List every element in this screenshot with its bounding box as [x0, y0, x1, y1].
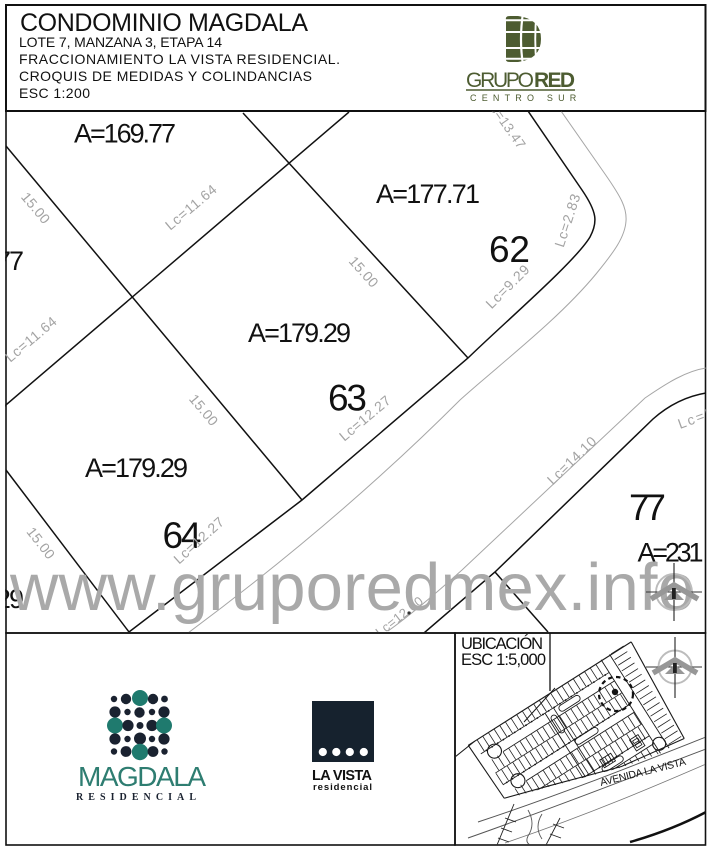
svg-text:A=177.71: A=177.71 [376, 179, 480, 209]
svg-text:A=179.29: A=179.29 [248, 318, 351, 348]
svg-text:ESC 1:200: ESC 1:200 [19, 85, 90, 101]
svg-text:FRACCIONAMIENTO LA VISTA RESID: FRACCIONAMIENTO LA VISTA RESIDENCIAL. [19, 51, 340, 67]
svg-text:GRUPO: GRUPO [466, 69, 534, 92]
svg-text:CENTRO SUR: CENTRO SUR [470, 93, 582, 103]
svg-text:ESC 1:5,000: ESC 1:5,000 [461, 651, 546, 669]
svg-text:A=179.29: A=179.29 [85, 453, 188, 483]
svg-text:62: 62 [489, 229, 530, 270]
svg-text:CROQUIS DE MEDIDAS Y COLINDANC: CROQUIS DE MEDIDAS Y COLINDANCIAS [19, 68, 312, 84]
svg-text:residencial: residencial [313, 782, 372, 793]
svg-text:CONDOMINIO MAGDALA: CONDOMINIO MAGDALA [20, 9, 308, 37]
svg-text:www.gruporedmex.info: www.gruporedmex.info [9, 550, 695, 625]
svg-text:RESIDENCIAL: RESIDENCIAL [76, 792, 201, 803]
svg-text:RED: RED [534, 69, 575, 92]
svg-text:MAGDALA: MAGDALA [78, 761, 208, 792]
svg-text:77: 77 [629, 487, 666, 528]
svg-text:A=169.77: A=169.77 [74, 119, 176, 149]
svg-text:LOTE 7, MANZANA 3, ETAPA 14: LOTE 7, MANZANA 3, ETAPA 14 [19, 34, 222, 50]
